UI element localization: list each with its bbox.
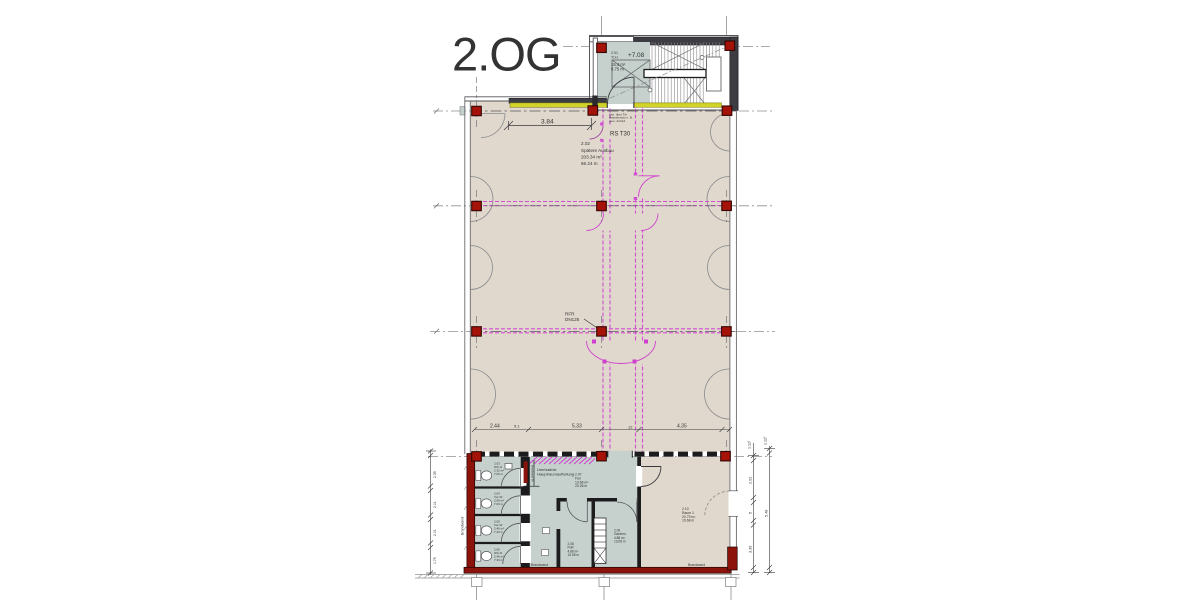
svg-text:3.84: 3.84	[541, 119, 554, 126]
svg-text:5.1: 5.1	[514, 424, 520, 429]
svg-text:2.01: 2.01	[433, 529, 437, 536]
svg-text:7.03 m: 7.03 m	[494, 502, 504, 506]
svg-text:Spätere Ausbau: Spätere Ausbau	[581, 148, 614, 153]
svg-text:20.26 m: 20.26 m	[575, 484, 587, 488]
svg-text:2.02: 2.02	[581, 141, 590, 146]
svg-text:2.01: 2.01	[433, 501, 437, 508]
svg-text:203.34 m²: 203.34 m²	[581, 155, 602, 160]
svg-text:1.12²: 1.12²	[748, 440, 752, 449]
svg-text:3.39: 3.39	[749, 546, 753, 553]
svg-text:2.02: 2.02	[749, 477, 753, 484]
svg-text:5.48: 5.48	[765, 510, 769, 517]
svg-text:Brandwand: Brandwand	[461, 517, 465, 535]
svg-text:2.44: 2.44	[490, 424, 500, 430]
svg-text:1.75: 1.75	[433, 557, 437, 564]
svg-text:13.08 m: 13.08 m	[614, 540, 626, 544]
svg-text:RFR: RFR	[565, 312, 575, 317]
svg-text:RS T30: RS T30	[610, 132, 631, 138]
svg-text:7.06 m: 7.06 m	[494, 472, 504, 476]
svg-text:4.35: 4.35	[677, 424, 687, 430]
svg-text:Hauptraumaufteilung: Hauptraumaufteilung	[537, 472, 574, 477]
svg-text:66.24 m: 66.24 m	[581, 161, 598, 166]
svg-text:Brandwand: Brandwand	[688, 563, 705, 567]
svg-text:2.OG: 2.OG	[452, 28, 561, 81]
svg-text:7.23 m: 7.23 m	[494, 530, 504, 534]
svg-text:12: 12	[628, 425, 633, 430]
svg-text:19.68 m: 19.68 m	[682, 519, 694, 523]
svg-text:Brandwand 90: Brandwand 90	[531, 465, 535, 482]
svg-text:Tr.H.: Tr.H.	[611, 55, 619, 59]
svg-text:13.08 m: 13.08 m	[568, 553, 580, 557]
svg-text:9.75 m: 9.75 m	[611, 67, 624, 72]
svg-text:1.12²: 1.12²	[764, 436, 768, 445]
svg-text:DN125: DN125	[565, 317, 580, 322]
svg-text:2.01: 2.01	[611, 51, 618, 55]
svg-text:5: 5	[749, 512, 753, 514]
svg-text:Brandwand: Brandwand	[531, 563, 548, 567]
svg-text:2.39: 2.39	[433, 471, 437, 478]
svg-text:+7.08: +7.08	[628, 52, 645, 59]
svg-text:gem. Anford.: gem. Anford.	[609, 119, 626, 123]
svg-text:7.33 m: 7.33 m	[494, 558, 504, 562]
svg-text:5.33: 5.33	[572, 424, 582, 430]
